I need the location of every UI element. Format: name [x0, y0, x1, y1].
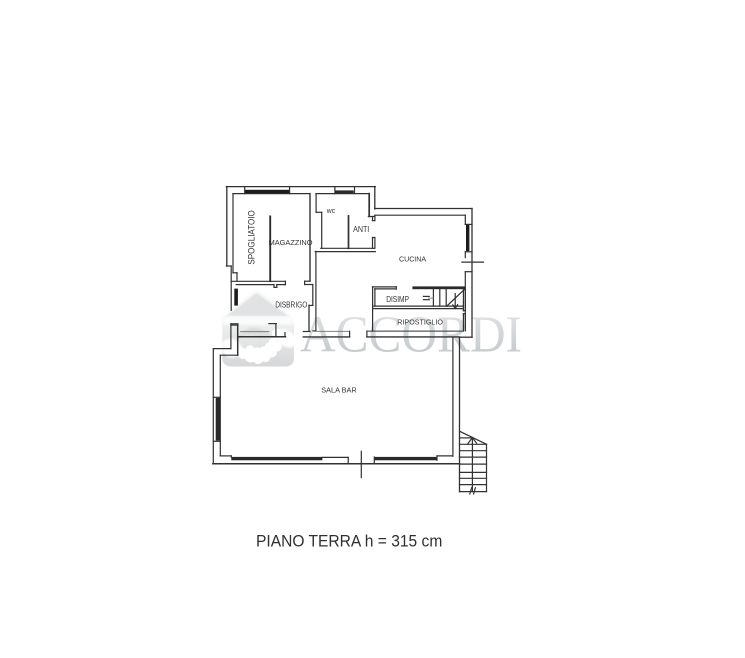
- svg-text:CUCINA: CUCINA: [399, 254, 427, 263]
- svg-text:RIPOSTIGLIO: RIPOSTIGLIO: [397, 317, 443, 326]
- svg-text:ANTI: ANTI: [353, 225, 369, 234]
- svg-text:ACCORDI: ACCORDI: [300, 307, 522, 364]
- svg-text:DISIMP: DISIMP: [386, 295, 409, 304]
- svg-text:wc: wc: [326, 208, 336, 215]
- svg-text:PIANO TERRA h = 315 cm: PIANO TERRA h = 315 cm: [256, 532, 442, 550]
- svg-text:SALA BAR: SALA BAR: [321, 386, 357, 395]
- svg-text:DISBRIGO: DISBRIGO: [275, 301, 307, 310]
- svg-text:SPOGLIATOIO: SPOGLIATOIO: [247, 210, 257, 264]
- svg-text:MAGAZZINO: MAGAZZINO: [269, 238, 313, 247]
